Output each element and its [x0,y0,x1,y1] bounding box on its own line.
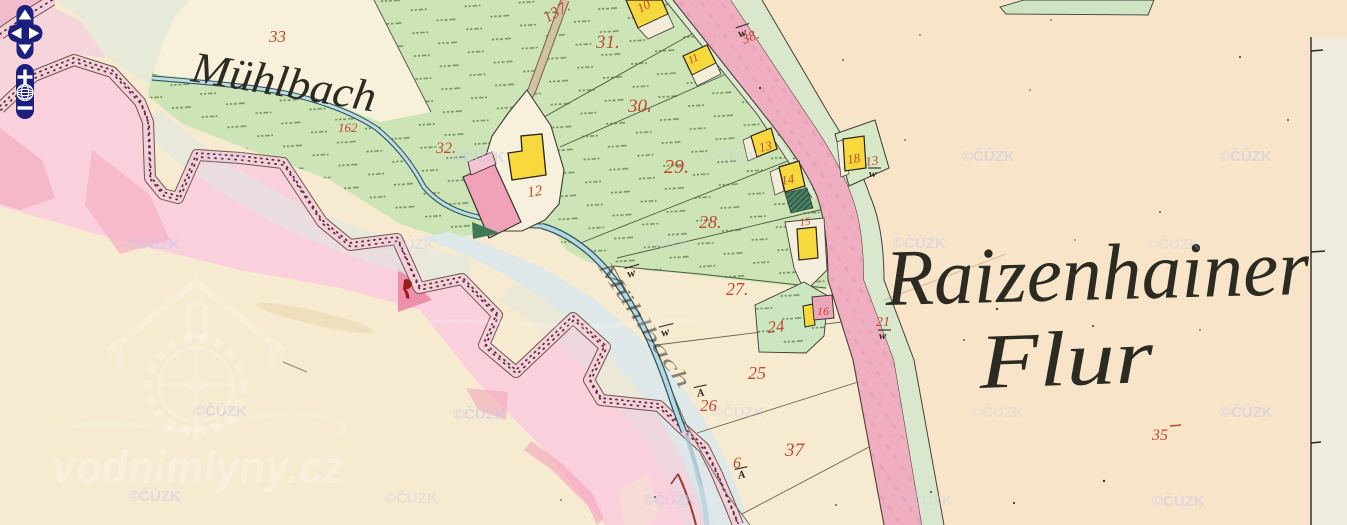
svg-text:©ČÚZK: ©ČÚZK [385,489,438,507]
svg-text:©ČÚZK: ©ČÚZK [453,405,506,423]
svg-text:13: 13 [864,152,879,169]
svg-text:30.: 30. [627,96,652,117]
svg-text:©ČÚZK: ©ČÚZK [900,491,953,509]
svg-text:24: 24 [766,316,785,337]
svg-text:33: 33 [268,27,286,46]
svg-text:35: 35 [1151,427,1168,444]
svg-text:Raizenhainer: Raizenhainer [883,224,1311,323]
svg-text:©ČÚZK: ©ČÚZK [127,235,180,253]
svg-text:w: w [879,330,887,342]
svg-text:31.: 31. [595,32,620,53]
svg-text:37: 37 [784,440,806,461]
svg-text:©ČÚZK: ©ČÚZK [452,148,505,166]
svg-text:w: w [869,168,877,180]
svg-text:28.: 28. [699,212,722,232]
svg-text:©ČÚZK: ©ČÚZK [712,403,765,421]
svg-text:©ČÚZK: ©ČÚZK [971,403,1024,421]
svg-text:©ČÚZK: ©ČÚZK [707,148,760,166]
svg-text:©ČÚZK: ©ČÚZK [382,235,435,253]
svg-text:vodnimlyny.cz: vodnimlyny.cz [52,441,344,493]
svg-text:©ČÚZK: ©ČÚZK [1147,235,1200,253]
svg-text:Flur: Flur [976,312,1155,405]
svg-text:25: 25 [748,363,766,383]
svg-text:©ČÚZK: ©ČÚZK [962,147,1015,165]
svg-text:15: 15 [799,215,812,228]
svg-text:27.: 27. [726,279,749,299]
svg-text:©ČÚZK: ©ČÚZK [197,148,250,166]
svg-text:12: 12 [526,183,544,201]
svg-text:©ČÚZK: ©ČÚZK [643,491,696,509]
svg-text:©ČÚZK: ©ČÚZK [1152,492,1205,510]
svg-text:29.: 29. [664,156,689,178]
svg-text:©ČÚZK: ©ČÚZK [637,235,690,253]
svg-text:16: 16 [817,304,829,318]
svg-text:©ČÚZK: ©ČÚZK [1219,147,1272,165]
svg-text:©ČÚZK: ©ČÚZK [893,234,946,252]
svg-text:162: 162 [338,120,358,135]
svg-text:©ČÚZK: ©ČÚZK [1220,403,1273,421]
